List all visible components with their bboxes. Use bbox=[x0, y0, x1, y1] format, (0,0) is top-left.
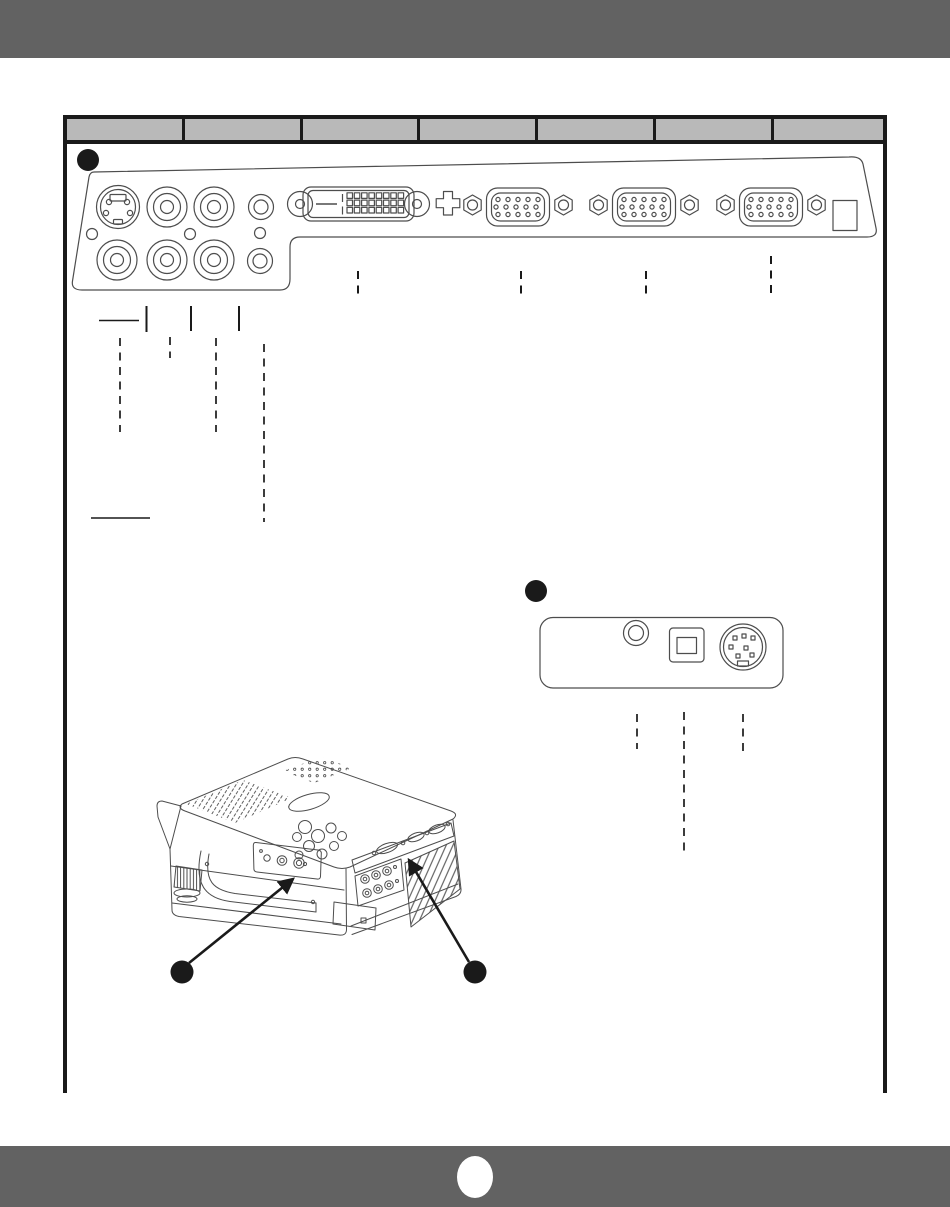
table-header-cell bbox=[538, 119, 656, 140]
table-header-cell bbox=[420, 119, 538, 140]
table-header-cell bbox=[303, 119, 421, 140]
page-footer-bar bbox=[0, 1146, 950, 1207]
table-header-cell bbox=[67, 119, 185, 140]
page-number-badge bbox=[457, 1156, 493, 1198]
table-header-cell bbox=[774, 119, 883, 140]
table-header-cell bbox=[185, 119, 303, 140]
table-body bbox=[67, 144, 883, 1114]
table-header-row bbox=[67, 119, 883, 144]
page-header-bar bbox=[0, 0, 950, 58]
terminal-reference-table bbox=[63, 115, 887, 1093]
table-header-cell bbox=[656, 119, 774, 140]
